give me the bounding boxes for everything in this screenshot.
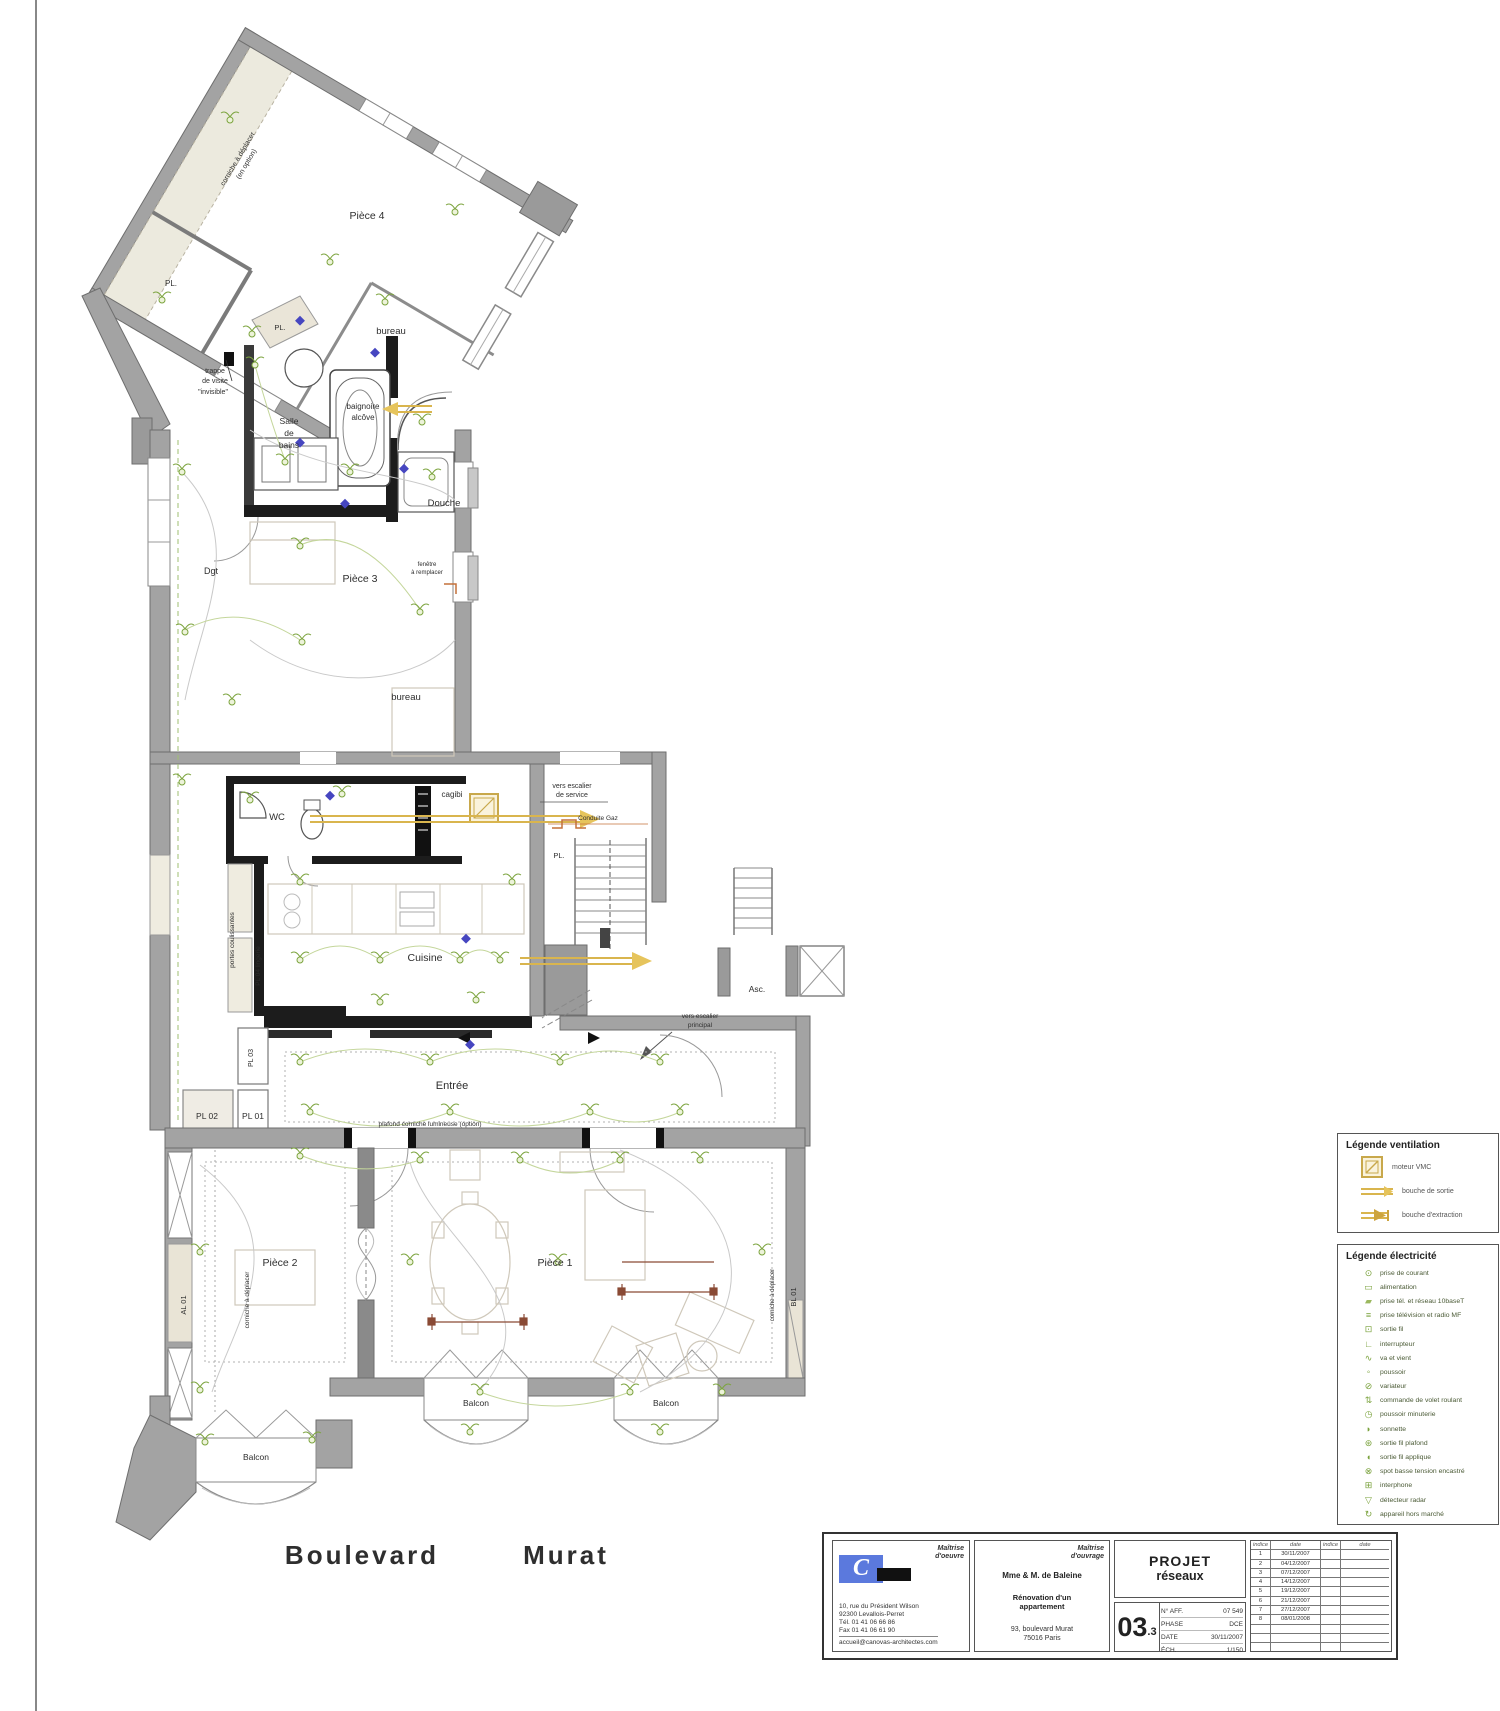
rev-cell: 3 xyxy=(1251,1569,1271,1578)
phase-label: PHASE xyxy=(1161,1621,1183,1628)
rev-cell: 08/01/2008 xyxy=(1271,1615,1321,1624)
rev-cell xyxy=(1321,1634,1341,1643)
closet-label-pl-top: PL. xyxy=(165,279,177,288)
rev-cell xyxy=(1341,1606,1389,1615)
architect-box: Maîtrise d'oeuvre C 10, rue du Président… xyxy=(832,1540,970,1652)
sheet-info-row: PHASEDCE xyxy=(1161,1618,1243,1631)
rev-cell: 04/12/2007 xyxy=(1271,1560,1321,1569)
legend-electricite: Légende électricité ⊙prise de courant ▭a… xyxy=(1337,1244,1499,1525)
revisions-table: indice date indice date 130/11/2007 204/… xyxy=(1251,1541,1391,1652)
legend-item-label: détecteur radar xyxy=(1380,1497,1426,1504)
sheet-box: 03 .3 N° AFF.07 549 PHASEDCE DATE30/11/2… xyxy=(1114,1602,1246,1652)
rev-cell xyxy=(1341,1634,1389,1643)
legend-item: ⊡sortie fil xyxy=(1346,1323,1490,1337)
legend-item: ∿va et vient xyxy=(1346,1351,1490,1365)
closet-label-bl01: BL 01 xyxy=(789,1287,798,1306)
street-name-boulevard: Boulevard xyxy=(285,1540,439,1570)
rev-header: indice xyxy=(1251,1541,1271,1550)
recessed-spot-icon: ⊗ xyxy=(1362,1467,1375,1476)
legend-item-label: moteur VMC xyxy=(1392,1164,1431,1171)
date-label: DATE xyxy=(1161,1634,1178,1641)
closet-label-al01: AL 01 xyxy=(179,1295,188,1314)
legend-item: ⇅commande de volet roulant xyxy=(1346,1394,1490,1408)
legend-item-label: prise de courant xyxy=(1380,1270,1429,1277)
legend-item: bouche de sortie xyxy=(1346,1179,1490,1203)
legend-item: ∟interrupteur xyxy=(1346,1337,1490,1351)
room-label-cuisine: Cuisine xyxy=(407,952,442,964)
legend-item: ⊛sortie fil plafond xyxy=(1346,1436,1490,1450)
living-block-walls xyxy=(116,1128,805,1540)
dimmer-icon: ⊘ xyxy=(1362,1382,1375,1391)
note-portes-coulissantes: portes coulissantes xyxy=(229,911,236,967)
room-label-asc: Asc. xyxy=(749,984,766,994)
legend-item-label: bouche de sortie xyxy=(1402,1188,1454,1195)
room-label-piece1: Pièce 1 xyxy=(537,1257,572,1269)
tv-icon: ≡ xyxy=(1362,1311,1375,1320)
legend-item: ⊞interphone xyxy=(1346,1479,1490,1493)
floor-plan-svg: Pièce 4 bureau PL. PL. Salle de bains ba… xyxy=(0,0,1500,1711)
legend-ventilation-title: Légende ventilation xyxy=(1346,1140,1490,1151)
furniture xyxy=(235,522,754,1386)
rev-cell: 19/12/2007 xyxy=(1271,1587,1321,1596)
note-vers-principal-2: principal xyxy=(688,1022,713,1029)
closet-label-pl03: PL 03 xyxy=(248,1049,255,1067)
legend-item: ▽détecteur radar xyxy=(1346,1493,1490,1507)
architect-website: accueil@canovas-architectes.com xyxy=(839,1636,938,1646)
extract-duct-icon xyxy=(1360,1209,1394,1221)
sconce-outlet-icon: ◖ xyxy=(1362,1453,1375,1462)
rev-cell xyxy=(1341,1550,1389,1559)
sheet-info: N° AFF.07 549 PHASEDCE DATE30/11/2007 ÉC… xyxy=(1161,1605,1243,1656)
closet-label-pl02: PL 02 xyxy=(196,1111,218,1121)
legend-item-label: interphone xyxy=(1380,1482,1412,1489)
legend-item-label: poussoir minuterie xyxy=(1380,1411,1436,1418)
project-title-line1: PROJET xyxy=(1115,1553,1245,1569)
rev-header: indice xyxy=(1321,1541,1341,1550)
rev-cell: 30/11/2007 xyxy=(1271,1550,1321,1559)
legend-item-label: variateur xyxy=(1380,1383,1406,1390)
rev-cell xyxy=(1251,1625,1271,1634)
sheet-number-suffix: .3 xyxy=(1147,1626,1156,1638)
label-baignoire-2: alcôve xyxy=(351,413,375,422)
room-label-wc: WC xyxy=(269,812,285,823)
duct-arrow xyxy=(632,952,652,970)
rev-cell xyxy=(1321,1560,1341,1569)
project-title-line2: réseaux xyxy=(1115,1569,1245,1583)
note-fenetre-1: fenêtre xyxy=(418,562,437,568)
rev-cell xyxy=(1321,1606,1341,1615)
sheet-info-row: ÉCH.1/150 xyxy=(1161,1644,1243,1656)
rev-header: date xyxy=(1341,1541,1389,1550)
legend-item: bouche d'extraction xyxy=(1346,1203,1490,1227)
label-baignoire-1: baignoire xyxy=(347,402,380,411)
label-balcon-right: Balcon xyxy=(653,1398,679,1408)
rev-cell xyxy=(1321,1615,1341,1624)
architect-address-line: Tél. 01 41 06 66 86 xyxy=(839,1619,919,1627)
legend-item: ⊙prise de courant xyxy=(1346,1266,1490,1280)
legend-item: ▰prise tél. et réseau 10baseT xyxy=(1346,1294,1490,1308)
closet-label-pl01: PL 01 xyxy=(242,1111,264,1121)
phase-value: DCE xyxy=(1229,1621,1243,1628)
legend-item-label: prise télévision et radio MF xyxy=(1380,1312,1461,1319)
rev-cell xyxy=(1321,1587,1341,1596)
architect-logo: C xyxy=(839,1555,911,1585)
ech-label: ÉCH. xyxy=(1161,1647,1177,1654)
client-name: Mme & M. de Baleine xyxy=(975,1571,1109,1580)
street-name-murat: Murat xyxy=(523,1540,609,1570)
legend-item: ◦poussoir xyxy=(1346,1365,1490,1379)
rev-cell xyxy=(1341,1569,1389,1578)
main-stair-elevator xyxy=(560,868,844,1146)
legend-item-label: bouche d'extraction xyxy=(1402,1212,1463,1219)
client-role: Maîtrise d'ouvrage xyxy=(1071,1545,1104,1561)
ech-value: 1/150 xyxy=(1227,1647,1243,1654)
label-balcon-left: Balcon xyxy=(243,1452,269,1462)
legend-item: ⊗spot basse tension encastré xyxy=(1346,1465,1490,1479)
client-box: Maîtrise d'ouvrage Mme & M. de Baleine R… xyxy=(974,1540,1110,1652)
note-vers-service-1: vers escalier xyxy=(552,783,592,790)
architect-role: Maîtrise d'oeuvre xyxy=(935,1545,964,1561)
note-corniche-left: corniche à déplacer xyxy=(244,1271,251,1329)
room-label-piece2: Pièce 2 xyxy=(262,1257,297,1269)
wire-outlet-icon: ⊡ xyxy=(1362,1325,1375,1334)
rev-cell xyxy=(1321,1569,1341,1578)
legend-item-label: va et vient xyxy=(1380,1355,1411,1362)
rev-cell: 8 xyxy=(1251,1615,1271,1624)
rev-cell: 14/12/2007 xyxy=(1271,1578,1321,1587)
note-plafond: plafond corniche lumineuse (option) xyxy=(379,1121,482,1128)
room-label-bureau-top: bureau xyxy=(376,326,406,337)
gas-pipe xyxy=(444,584,648,828)
room-label-douche: Douche xyxy=(428,498,461,509)
rev-cell: 6 xyxy=(1251,1597,1271,1606)
rev-cell xyxy=(1271,1643,1321,1652)
rev-cell: 7 xyxy=(1251,1606,1271,1615)
legend-ventilation: Légende ventilation moteur VMC bouche de… xyxy=(1337,1133,1499,1233)
note-fenetre-2: à remplacer xyxy=(411,570,443,576)
note-vers-service-2: de service xyxy=(556,792,588,799)
rev-cell: 4 xyxy=(1251,1578,1271,1587)
rev-cell xyxy=(1341,1587,1389,1596)
rev-cell xyxy=(1341,1578,1389,1587)
bell-icon: ◗ xyxy=(1362,1425,1375,1434)
rev-cell: 27/12/2007 xyxy=(1271,1606,1321,1615)
ceiling-outlet-icon: ⊛ xyxy=(1362,1439,1375,1448)
legend-item-label: sortie fil xyxy=(1380,1326,1403,1333)
rev-cell xyxy=(1321,1578,1341,1587)
rev-cell xyxy=(1321,1597,1341,1606)
radar-detector-icon: ▽ xyxy=(1362,1496,1375,1505)
rev-cell xyxy=(1251,1634,1271,1643)
note-vers-principal-1: vers escalier xyxy=(682,1013,719,1020)
rev-cell xyxy=(1341,1625,1389,1634)
aff-value: 07 549 xyxy=(1223,1608,1243,1615)
closet-label-pl-stairs: PL. xyxy=(553,851,564,860)
legend-item-label: sortie fil plafond xyxy=(1380,1440,1428,1447)
room-label-cagibi: cagibi xyxy=(442,790,463,799)
sheet-number: 03 .3 xyxy=(1115,1603,1160,1651)
legend-item: ≡prise télévision et radio MF xyxy=(1346,1309,1490,1323)
note-corniche-right: corniche à déplacer xyxy=(770,1269,776,1321)
room-label-bureau-mid: bureau xyxy=(391,692,421,703)
client-address-line: 75016 Paris xyxy=(975,1634,1109,1643)
legend-item-label: prise tél. et réseau 10baseT xyxy=(1380,1298,1464,1305)
architect-address-line: Fax 01 41 06 61 90 xyxy=(839,1627,919,1635)
sheet-info-row: DATE30/11/2007 xyxy=(1161,1631,1243,1644)
legend-item-label: commande de volet roulant xyxy=(1380,1397,1462,1404)
two-way-switch-icon: ∿ xyxy=(1362,1354,1375,1363)
shutter-control-icon: ⇅ xyxy=(1362,1396,1375,1405)
note-trappe-3: "invisible" xyxy=(198,389,228,396)
closet-label-pl04: PL 04 lingerie xyxy=(255,946,262,986)
vmc-motor-icon xyxy=(1360,1155,1384,1179)
room-label-dgt: Dgt xyxy=(204,566,219,576)
rev-cell xyxy=(1321,1643,1341,1652)
rev-cell xyxy=(1341,1597,1389,1606)
sheet-info-row: N° AFF.07 549 xyxy=(1161,1605,1243,1618)
supply-duct-icon xyxy=(1360,1185,1394,1197)
off-market-device-icon: ↻ xyxy=(1362,1510,1375,1519)
legend-item: ◷poussoir minuterie xyxy=(1346,1408,1490,1422)
sheet-number-main: 03 xyxy=(1117,1612,1147,1643)
legend-item: ⊘variateur xyxy=(1346,1380,1490,1394)
timer-push-icon: ◷ xyxy=(1362,1410,1375,1419)
legend-item: ◖sortie fil applique xyxy=(1346,1450,1490,1464)
supply-icon: ▭ xyxy=(1362,1283,1375,1292)
architect-address: 10, rue du Président Wilson 92300 Levall… xyxy=(839,1603,919,1635)
legend-item-label: interrupteur xyxy=(1380,1341,1415,1348)
switch-icon: ∟ xyxy=(1362,1340,1375,1349)
room-label-piece4: Pièce 4 xyxy=(349,210,384,222)
rev-cell: 2 xyxy=(1251,1560,1271,1569)
client-project-line: appartement xyxy=(975,1602,1109,1611)
client-address: 93, boulevard Murat 75016 Paris xyxy=(975,1625,1109,1643)
rev-cell xyxy=(1251,1643,1271,1652)
legend-item: ↻appareil hors marché xyxy=(1346,1507,1490,1521)
project-box: PROJET réseaux xyxy=(1114,1540,1246,1598)
rev-cell xyxy=(1271,1625,1321,1634)
legend-item-label: poussoir xyxy=(1380,1369,1406,1376)
rev-cell: 07/12/2007 xyxy=(1271,1569,1321,1578)
room-label-entree: Entrée xyxy=(436,1080,468,1092)
legend-item-label: alimentation xyxy=(1380,1284,1417,1291)
legend-electricite-title: Légende électricité xyxy=(1346,1251,1490,1262)
network-icon: ▰ xyxy=(1362,1297,1375,1306)
legend-item-label: appareil hors marché xyxy=(1380,1511,1444,1518)
rev-cell: 21/12/2007 xyxy=(1271,1597,1321,1606)
intercom-icon: ⊞ xyxy=(1362,1481,1375,1490)
rev-cell: 5 xyxy=(1251,1587,1271,1596)
rev-header: date xyxy=(1271,1541,1321,1550)
rev-cell: 1 xyxy=(1251,1550,1271,1559)
architect-address-line: 10, rue du Président Wilson xyxy=(839,1603,919,1611)
room-label-salle-3: bains xyxy=(279,440,299,450)
aff-label: N° AFF. xyxy=(1161,1608,1183,1615)
rev-cell xyxy=(1341,1615,1389,1624)
legend-item: moteur VMC xyxy=(1346,1155,1490,1179)
architect-address-line: 92300 Levallois-Perret xyxy=(839,1611,919,1619)
title-block: Maîtrise d'oeuvre C 10, rue du Président… xyxy=(822,1532,1398,1660)
label-balcon-mid: Balcon xyxy=(463,1398,489,1408)
client-address-line: 93, boulevard Murat xyxy=(975,1625,1109,1634)
client-project: Rénovation d'un appartement xyxy=(975,1593,1109,1611)
room-label-salle-1: Salle xyxy=(280,416,299,426)
closet-label-pl-bath: PL. xyxy=(274,323,285,332)
project-title: PROJET réseaux xyxy=(1115,1553,1245,1583)
date-value: 30/11/2007 xyxy=(1211,1634,1243,1641)
client-project-line: Rénovation d'un xyxy=(975,1593,1109,1602)
drawing-sheet: Pièce 4 bureau PL. PL. Salle de bains ba… xyxy=(0,0,1500,1711)
rev-cell xyxy=(1321,1625,1341,1634)
revisions-box: indice date indice date 130/11/2007 204/… xyxy=(1250,1540,1392,1652)
legend-item: ▭alimentation xyxy=(1346,1280,1490,1294)
note-trappe-2: de visite xyxy=(202,378,228,385)
legend-item-label: sortie fil applique xyxy=(1380,1454,1431,1461)
push-button-icon: ◦ xyxy=(1362,1368,1375,1377)
note-trappe-1: trappe xyxy=(205,368,225,375)
note-conduite-gaz: Conduite Gaz xyxy=(578,815,618,822)
architect-logo-chip xyxy=(877,1568,911,1581)
rev-cell xyxy=(1341,1560,1389,1569)
socket-icon: ⊙ xyxy=(1362,1269,1375,1278)
legend-item-label: spot basse tension encastré xyxy=(1380,1468,1465,1475)
rev-cell xyxy=(1271,1634,1321,1643)
rev-cell xyxy=(1341,1643,1389,1652)
rev-cell xyxy=(1321,1550,1341,1559)
legend-item: ◗sonnette xyxy=(1346,1422,1490,1436)
legend-item-label: sonnette xyxy=(1380,1426,1406,1433)
room-label-salle-2: de xyxy=(284,428,294,438)
room-label-piece3: Pièce 3 xyxy=(342,573,377,585)
